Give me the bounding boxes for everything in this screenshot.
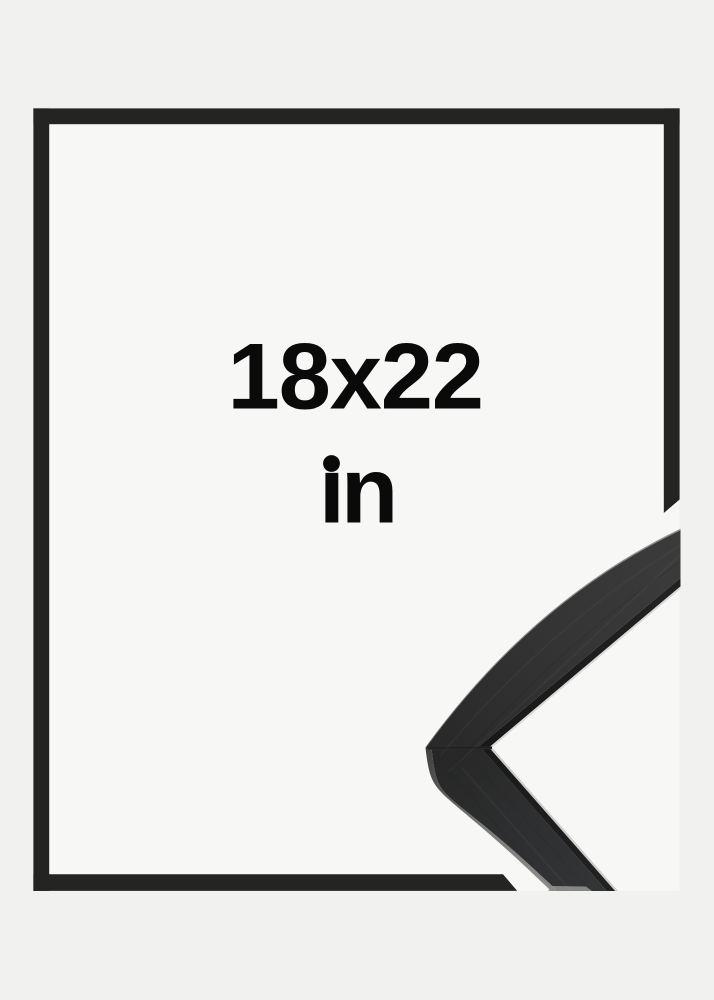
svg-text:ın: ın	[319, 437, 395, 542]
svg-text:18x22: 18x22	[227, 323, 482, 428]
